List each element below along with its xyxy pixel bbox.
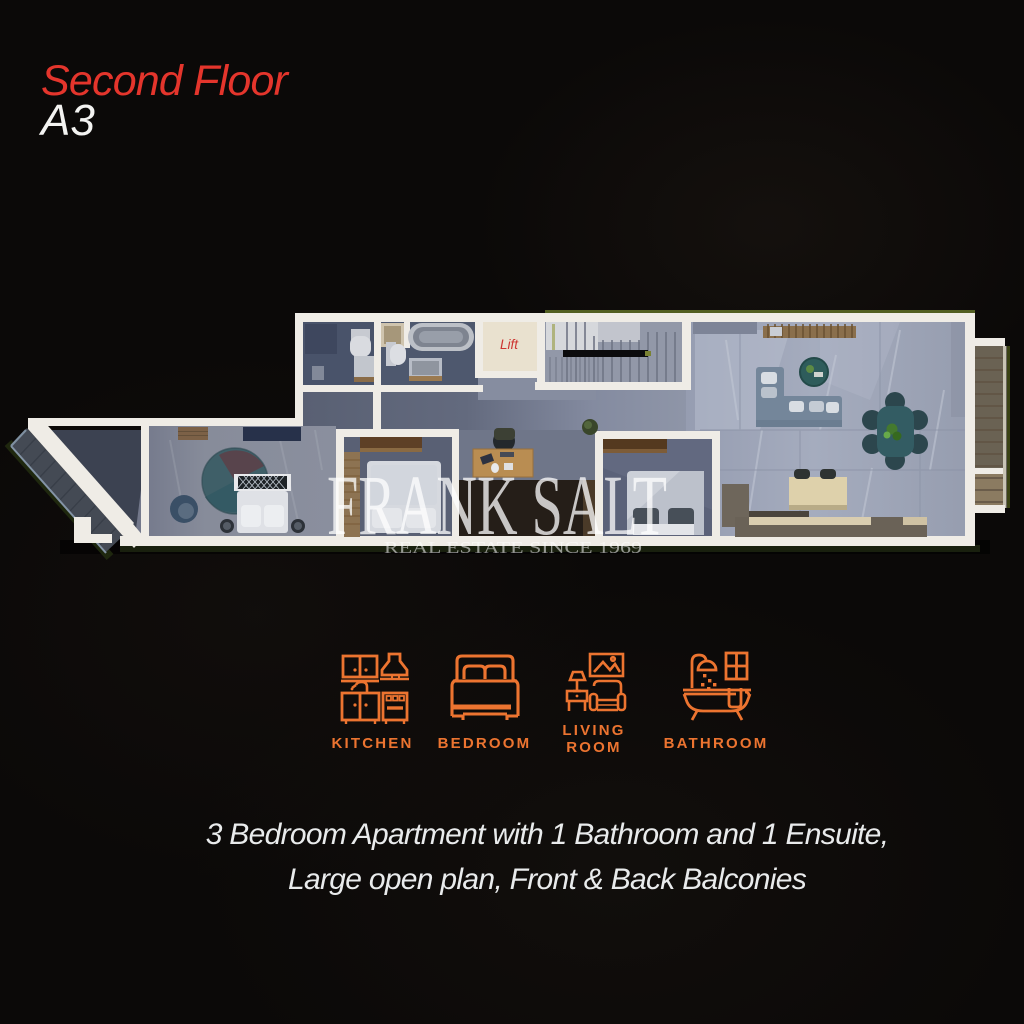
svg-text:REAL ESTATE SINCE 1969: REAL ESTATE SINCE 1969 [384, 538, 642, 557]
svg-text:Lift: Lift [500, 337, 519, 352]
